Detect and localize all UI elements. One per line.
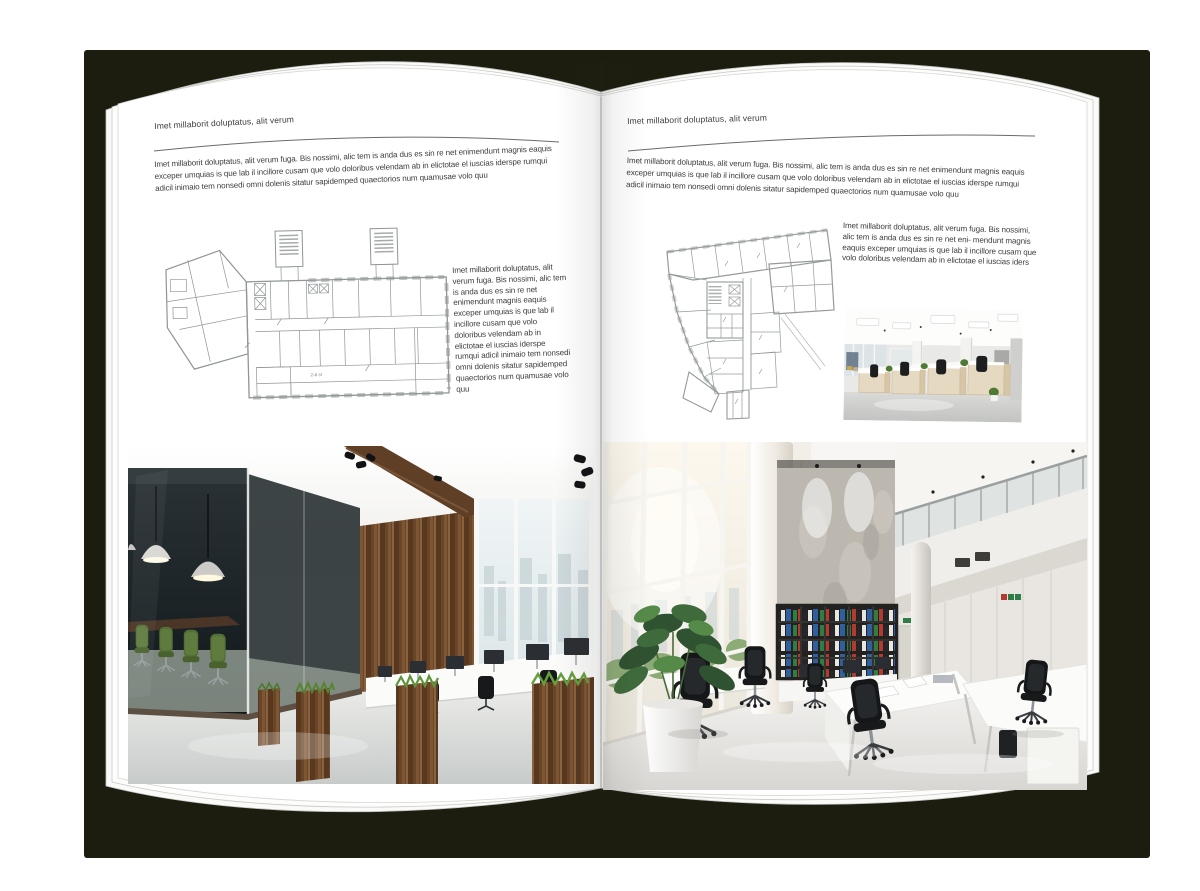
left-page-side-text: Imet millaborit doluptatus, alit verum f… bbox=[452, 262, 572, 396]
office-photo-bright-hall bbox=[603, 442, 1087, 790]
floorplan-floor-label: 2-й эт bbox=[310, 371, 322, 377]
exit-sign bbox=[1001, 594, 1021, 600]
floorplan-left: 2-й эт bbox=[157, 223, 453, 416]
office-photo-small-openspace bbox=[843, 308, 1023, 422]
book-mockup: Imet millaborit doluptatus, alit verum I… bbox=[0, 0, 1200, 891]
right-page-side-text: Imet millaborit doluptatus, alit verum f… bbox=[842, 221, 1043, 269]
office-photo-dark-loft bbox=[128, 446, 594, 784]
floorplan-right bbox=[649, 222, 839, 420]
